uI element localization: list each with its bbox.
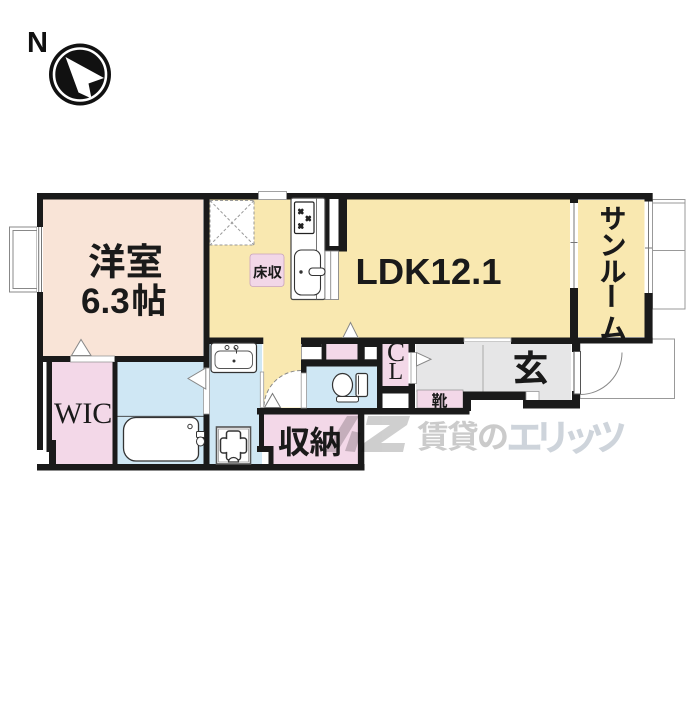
svg-text:N: N [27, 27, 48, 59]
svg-text:WIC: WIC [54, 397, 112, 430]
svg-text:L: L [389, 359, 404, 385]
svg-text:LDK12.1: LDK12.1 [356, 251, 502, 292]
svg-text:6.3: 6.3 [81, 282, 130, 321]
